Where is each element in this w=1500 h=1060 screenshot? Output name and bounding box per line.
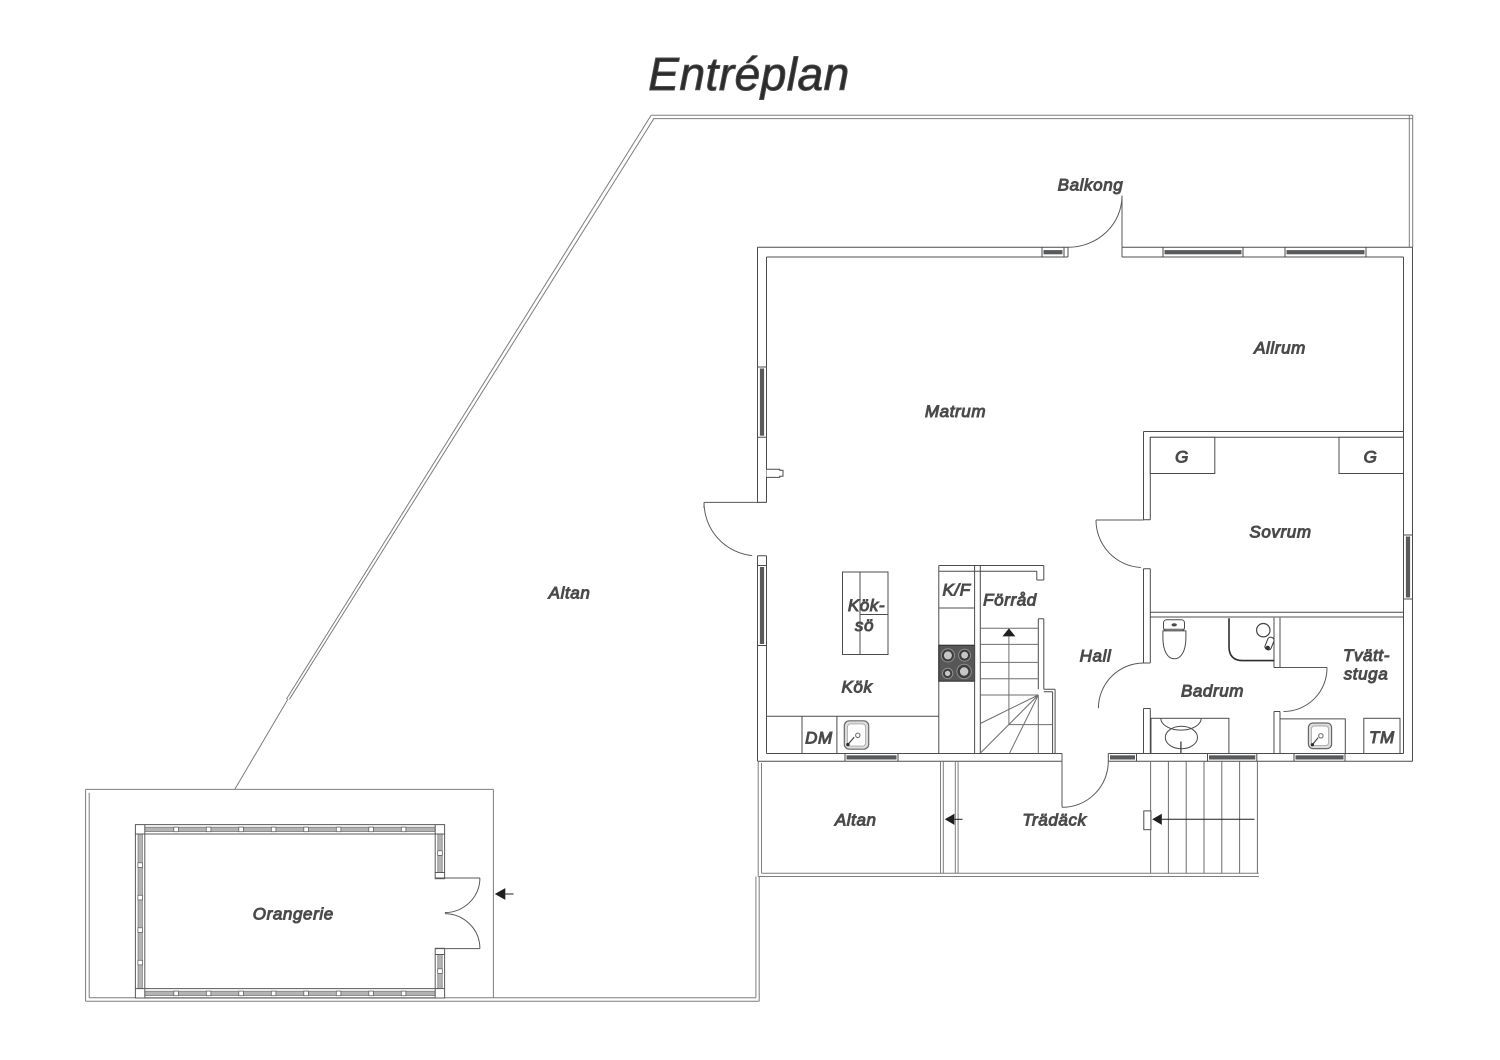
svg-text:Orangerie: Orangerie <box>253 905 334 924</box>
svg-text:Balkong: Balkong <box>1058 176 1124 195</box>
svg-text:Kök-: Kök- <box>848 596 885 615</box>
svg-text:Altan: Altan <box>834 811 877 830</box>
svg-text:stuga: stuga <box>1344 665 1389 684</box>
svg-text:K/F: K/F <box>942 581 971 600</box>
svg-text:Hall: Hall <box>1080 647 1112 666</box>
svg-text:Sovrum: Sovrum <box>1249 523 1311 542</box>
svg-text:Förråd: Förråd <box>983 591 1037 610</box>
svg-text:Entréplan: Entréplan <box>648 48 849 100</box>
svg-text:G: G <box>1175 448 1189 467</box>
svg-text:Matrum: Matrum <box>925 402 986 421</box>
svg-text:Trädäck: Trädäck <box>1022 811 1087 830</box>
svg-text:sö: sö <box>855 616 874 635</box>
svg-text:TM: TM <box>1369 728 1395 747</box>
svg-text:G: G <box>1364 448 1378 467</box>
svg-text:Kök: Kök <box>841 678 873 697</box>
svg-text:Allrum: Allrum <box>1253 339 1306 358</box>
svg-text:DM: DM <box>805 729 833 748</box>
svg-text:Altan: Altan <box>548 584 591 603</box>
svg-text:Badrum: Badrum <box>1181 682 1244 701</box>
svg-text:Tvätt-: Tvätt- <box>1343 646 1390 665</box>
